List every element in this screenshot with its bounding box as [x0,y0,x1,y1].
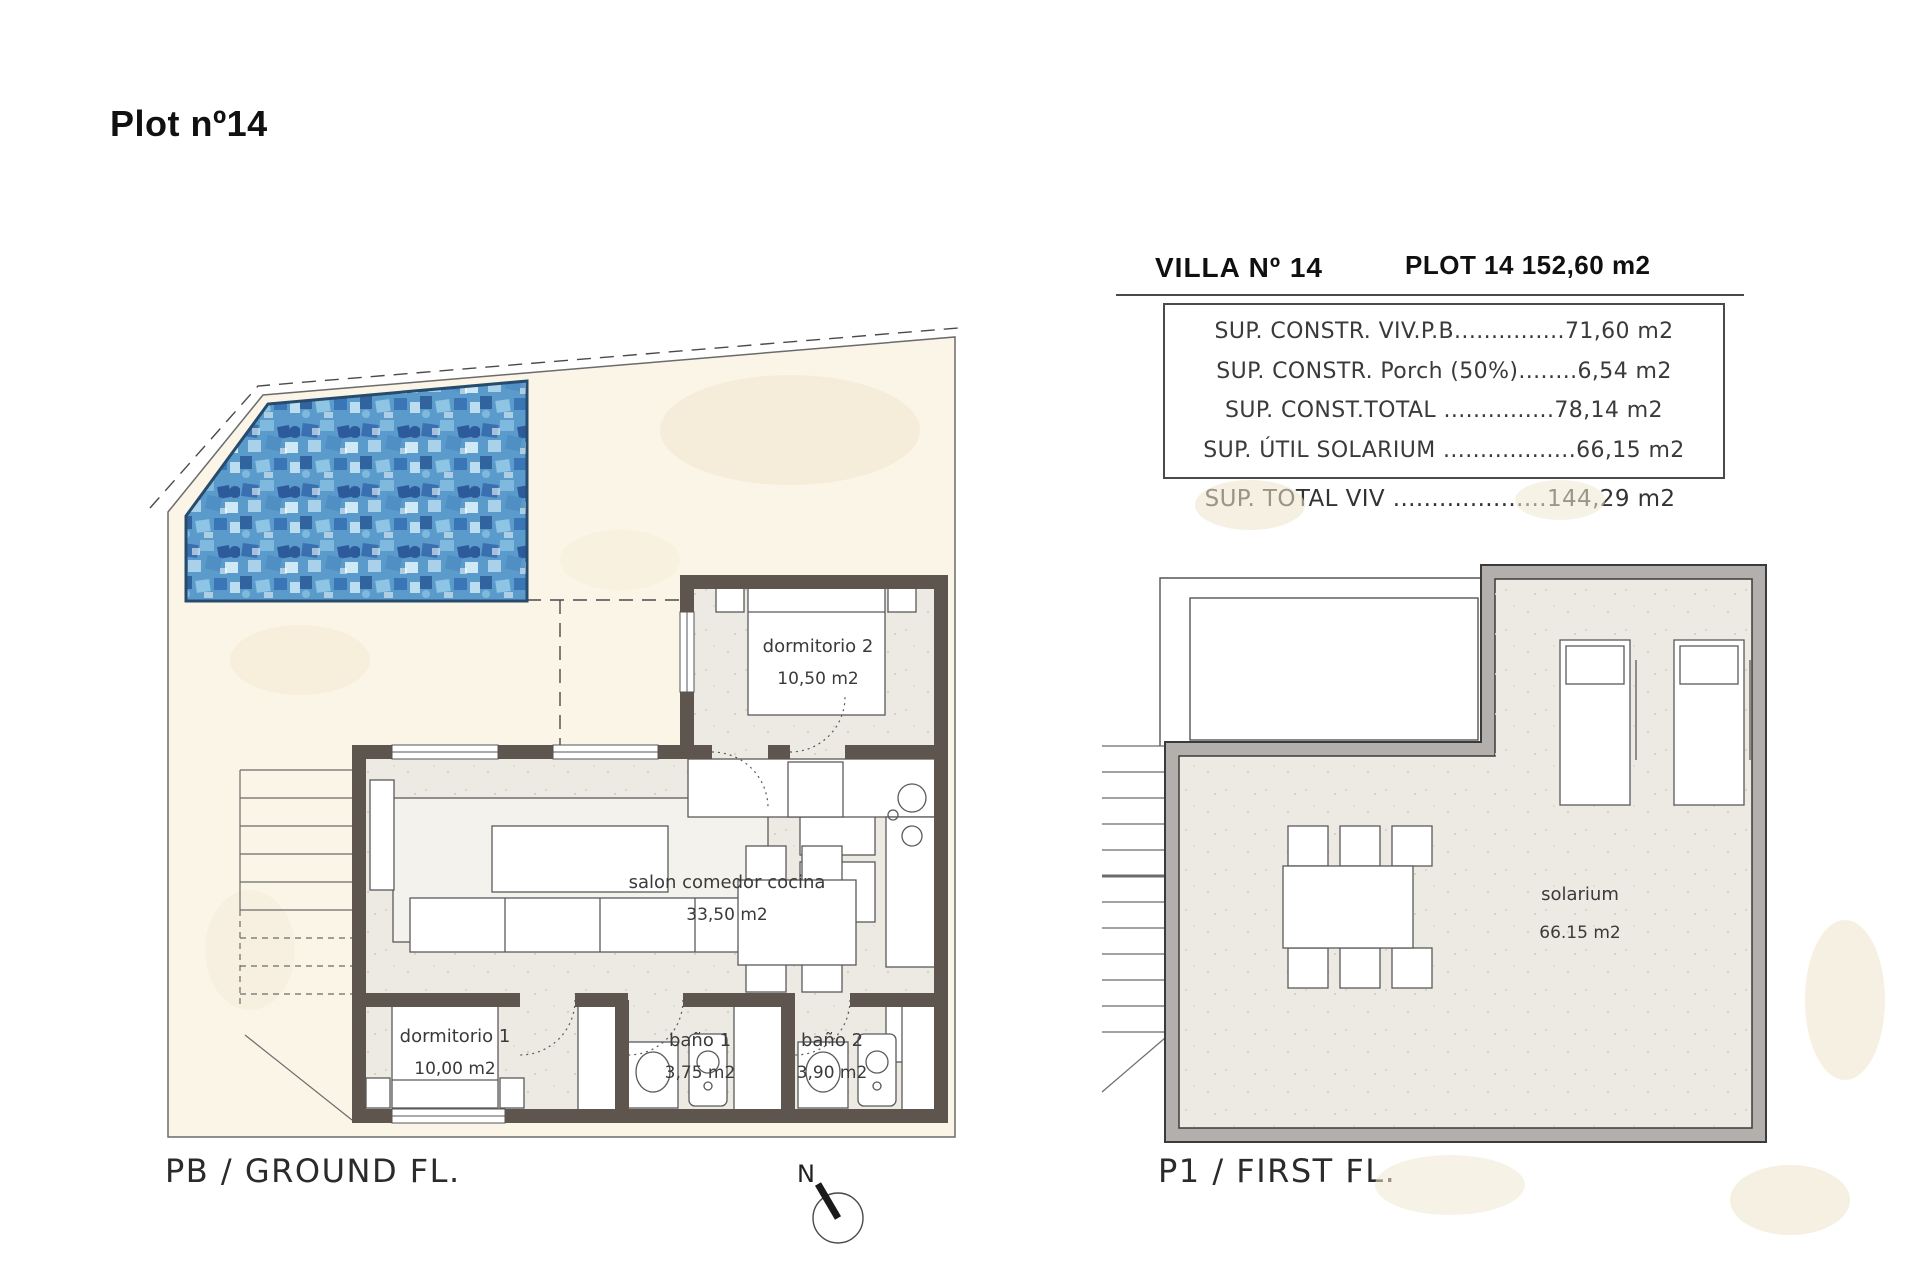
solarium-chair [1392,948,1432,988]
void-open-below [1190,598,1478,740]
swimming-pool [186,381,527,601]
nightstand [366,1078,390,1108]
compass-north-label: N [797,1160,815,1188]
shower [734,1002,782,1110]
room-area-solarium: 66.15 m2 [1539,923,1620,943]
solarium-table [1283,866,1413,948]
first-floor-plan: solarium 66.15 m2 [1102,480,1885,1235]
room-label-salon: salon comedor cocina [629,872,826,893]
room-area-dormitorio1: 10,00 m2 [414,1059,495,1079]
room-area-bano1: 3,75 m2 [665,1063,736,1083]
solarium-chair [1288,826,1328,866]
room-label-bano1: baño 1 [669,1030,731,1051]
tv-cabinet [370,780,394,890]
plans-drawing: dormitorio 2 10,50 m2 salon comedor coci… [0,0,1920,1280]
solarium-chair [1392,826,1432,866]
room-area-salon: 33,50 m2 [686,905,767,925]
room-label-dormitorio2: dormitorio 2 [763,636,874,657]
solarium-chair [1340,948,1380,988]
ground-floor-plan: dormitorio 2 10,50 m2 salon comedor coci… [150,328,958,1137]
room-label-bano2: baño 2 [801,1030,863,1051]
compass-needle [818,1184,838,1218]
wardrobe [578,1002,616,1112]
room-area-bano2: 3,90 m2 [797,1063,868,1083]
north-compass: N [797,1160,863,1243]
bed-dorm1 [392,1002,498,1108]
kitchen-island [788,762,843,817]
nightstand [500,1078,524,1108]
room-area-dormitorio2: 10,50 m2 [777,669,858,689]
room-label-dormitorio1: dormitorio 1 [400,1026,511,1047]
solarium-chair [1288,948,1328,988]
kitchen-counter-right [886,817,941,967]
room-label-solarium: solarium [1541,884,1619,905]
floorplan-sheet: Plot nº14 VILLA Nº 14 PLOT 14 152,60 m2 … [0,0,1920,1280]
first-floor-stairs [1102,746,1165,1092]
solarium-chair [1340,826,1380,866]
